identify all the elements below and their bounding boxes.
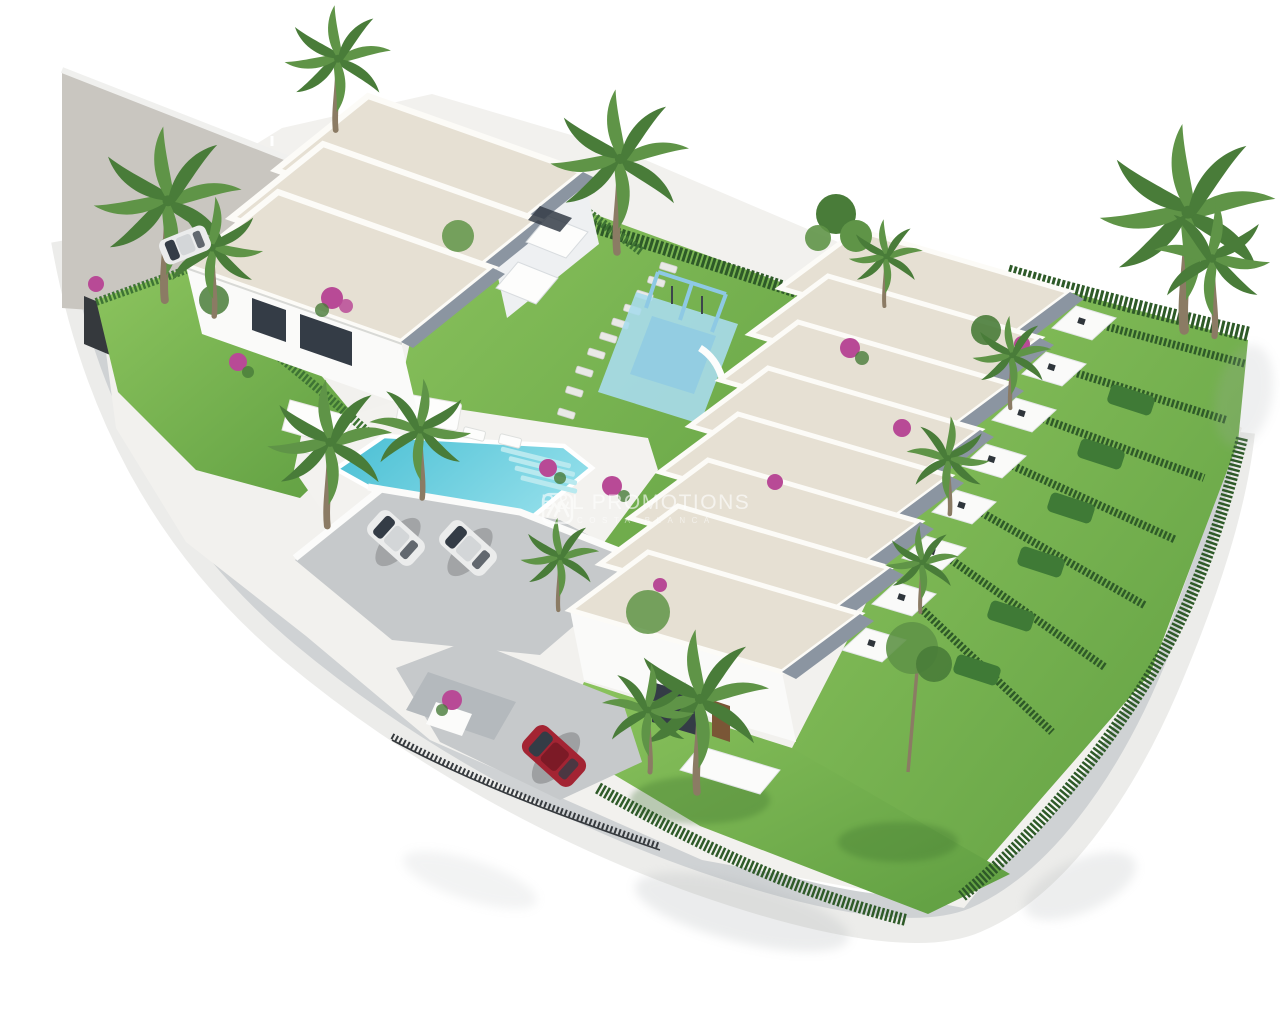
render-canvas: B&L PROMOTIONS COSTA BLANCA [0,0,1280,1024]
banana-plant [805,225,831,251]
tree-shade-on-lawn [838,822,958,862]
tree-crown [626,590,670,634]
garden-shrub [442,220,474,252]
tree-crown [916,646,952,682]
site-render [0,0,1280,1024]
